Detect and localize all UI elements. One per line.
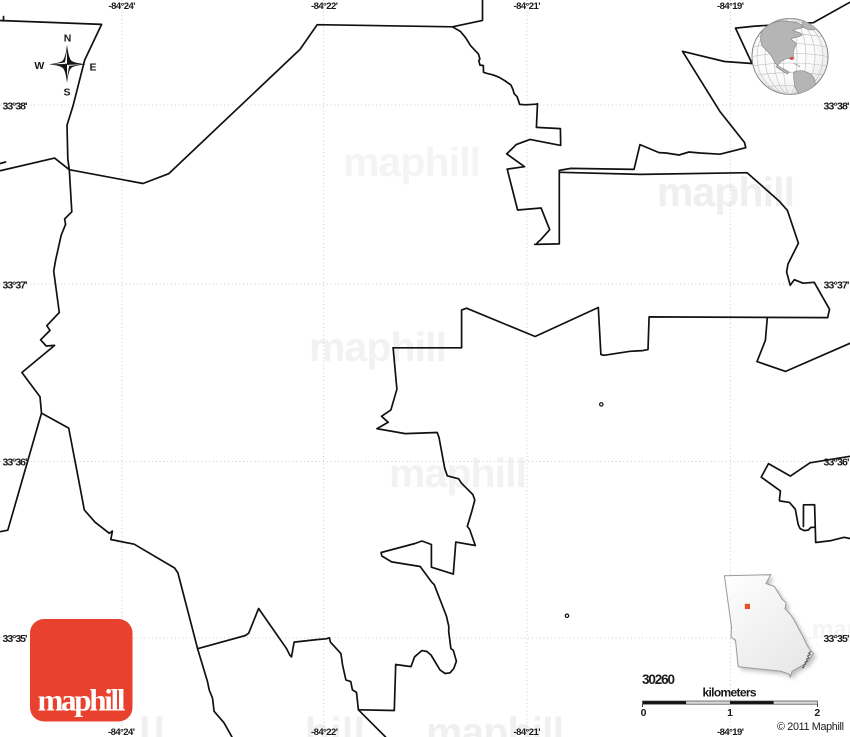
svg-text:33°37': 33°37': [824, 280, 850, 292]
svg-text:33°38': 33°38': [824, 101, 850, 113]
svg-text:E: E: [89, 62, 96, 74]
svg-text:maphill: maphill: [38, 683, 126, 718]
svg-text:-84°19': -84°19': [717, 1, 744, 12]
svg-text:30260: 30260: [642, 672, 675, 687]
svg-text:S: S: [63, 87, 70, 99]
svg-text:33°35': 33°35': [3, 633, 28, 645]
svg-text:-84°24': -84°24': [108, 727, 135, 737]
svg-text:0: 0: [641, 707, 647, 719]
svg-text:33°37': 33°37': [3, 280, 28, 292]
svg-text:maphill: maphill: [657, 169, 795, 215]
svg-text:maphill: maphill: [389, 450, 527, 496]
svg-text:2: 2: [814, 707, 820, 719]
svg-text:-84°22': -84°22': [311, 1, 338, 12]
svg-text:33°36': 33°36': [3, 457, 28, 469]
svg-text:maphill: maphill: [426, 709, 564, 737]
svg-text:-84°21': -84°21': [514, 1, 541, 12]
svg-text:kilometers: kilometers: [703, 686, 757, 700]
svg-text:-84°22': -84°22': [311, 727, 338, 737]
svg-text:-84°21': -84°21': [514, 727, 541, 737]
svg-text:© 2011 Maphill: © 2011 Maphill: [777, 721, 844, 733]
svg-text:33°38': 33°38': [3, 101, 28, 113]
svg-text:N: N: [64, 33, 72, 45]
svg-text:-84°19': -84°19': [717, 727, 744, 737]
svg-text:W: W: [34, 60, 44, 72]
svg-text:maphill: maphill: [343, 139, 481, 185]
svg-text:-84°24': -84°24': [109, 1, 136, 12]
svg-text:33°35': 33°35': [824, 633, 850, 645]
svg-text:33°36': 33°36': [824, 457, 850, 469]
svg-text:1: 1: [727, 707, 733, 719]
